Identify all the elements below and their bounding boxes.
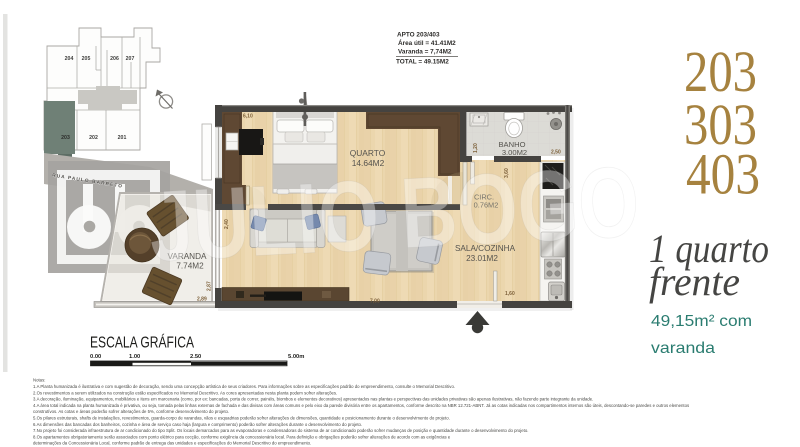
svg-text:8.Os apartamentos obrigatoriam: 8.Os apartamentos obrigatoriamente serão… (33, 434, 451, 439)
svg-text:Varanda = 7,74M2: Varanda = 7,74M2 (398, 49, 452, 56)
svg-text:7.No projeto foi considerada i: 7.No projeto foi considerada infraestrut… (33, 428, 528, 433)
svg-text:1,20: 1,20 (473, 143, 479, 153)
svg-text:7,00: 7,00 (370, 299, 380, 305)
svg-text:1.A Planta humanizada é ilustr: 1.A Planta humanizada é ilustrativa e co… (33, 384, 455, 389)
svg-text:204: 204 (65, 56, 74, 62)
svg-text:Área útil = 41.41M2: Área útil = 41.41M2 (398, 38, 456, 47)
svg-text:203: 203 (61, 135, 70, 141)
svg-text:frente: frente (649, 259, 740, 304)
svg-text:APTO 203/403: APTO 203/403 (397, 32, 440, 39)
svg-text:4.A área total indicada na pla: 4.A área total indicada na planta humani… (33, 403, 689, 408)
svg-text:403: 403 (686, 142, 760, 207)
svg-text:Notas:: Notas: (33, 378, 45, 383)
svg-text:6.As dimensões das bancadas do: 6.As dimensões das bancadas dos banheiro… (33, 422, 362, 427)
svg-text:QUARTO: QUARTO (350, 148, 386, 158)
svg-text:ESCALA GRÁFICA: ESCALA GRÁFICA (90, 335, 195, 352)
svg-text:201: 201 (118, 135, 127, 141)
svg-text:49,15m² com: 49,15m² com (651, 313, 752, 330)
svg-text:2,89: 2,89 (197, 297, 207, 303)
svg-text:TOTAL = 49.15M2: TOTAL = 49.15M2 (396, 59, 449, 66)
svg-text:varanda: varanda (651, 340, 715, 357)
svg-text:2,87: 2,87 (207, 281, 213, 291)
svg-text:205: 205 (82, 56, 91, 62)
svg-text:206: 206 (110, 56, 119, 62)
svg-text:2.50: 2.50 (190, 354, 201, 360)
svg-text:construtívos. As cotas e áreas: construtívos. As cotas e áreas poderão s… (33, 409, 229, 414)
svg-text:5.Os pilares estruturais, shaf: 5.Os pilares estruturais, shafts de inst… (33, 416, 450, 421)
svg-text:determinações da Concessionári: determinações da Concessionária Local, c… (33, 441, 311, 446)
svg-text:6,10: 6,10 (243, 114, 253, 120)
svg-text:202: 202 (89, 135, 98, 141)
svg-text:1,60: 1,60 (505, 291, 515, 297)
svg-text:207: 207 (126, 56, 135, 62)
svg-text:1.00: 1.00 (129, 354, 140, 360)
svg-text:0.00: 0.00 (90, 354, 101, 360)
svg-text:5.00m: 5.00m (288, 354, 304, 360)
svg-text:3.A decoração, iluminação, equ: 3.A decoração, iluminação, equipamentos,… (33, 397, 593, 402)
svg-text:2.Os revestimentos a serem uti: 2.Os revestimentos a serem utilizados na… (33, 390, 337, 395)
